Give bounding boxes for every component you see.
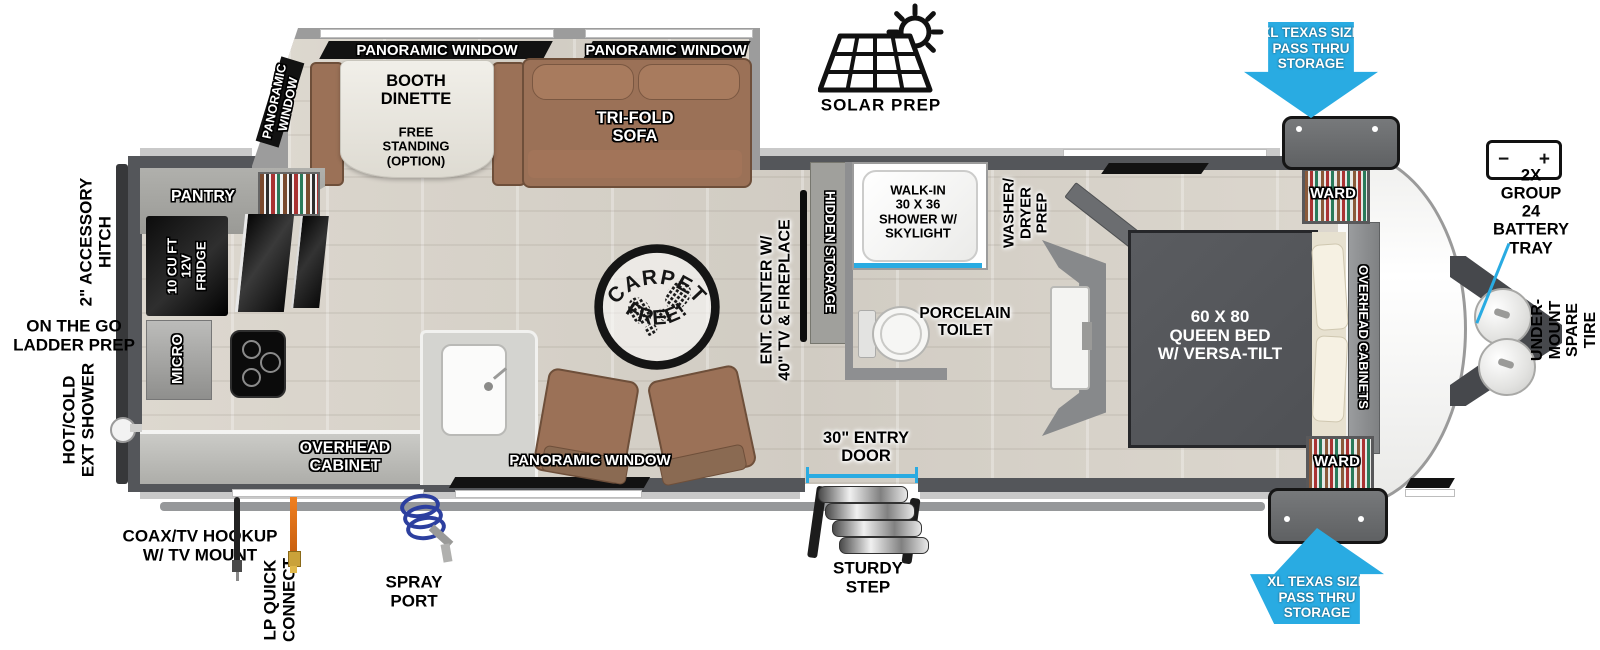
kitchen-window-strip (232, 489, 424, 497)
overhead-cabinet-label: OVERHEAD CABINET (300, 439, 391, 474)
wardrobe-label: WARD (1314, 454, 1360, 471)
tri-fold-sofa-label: TRI-FOLD SOFA (597, 109, 674, 145)
door-screw (1358, 516, 1364, 522)
door-screw (1284, 516, 1290, 522)
ext-shower-label: HOT/COLD EXT SHOWER (60, 363, 97, 477)
rv-floorplan: PANORAMIC WINDOW PANORAMIC WINDOW PANORA… (0, 0, 1600, 650)
coax-cable (234, 497, 240, 563)
bedroom-window-glass-bottom (1405, 478, 1455, 488)
sofa-seat (528, 150, 742, 178)
sofa-cushion (638, 64, 740, 100)
slide-window-strip (320, 29, 554, 38)
entry-door-measure-line (806, 474, 918, 478)
measure-tick (915, 467, 918, 483)
roof-band-top-left (140, 148, 252, 156)
pass-thru-label: XL TEXAS SIZE PASS THRU STORAGE (1250, 574, 1384, 621)
spray-nozzle-handle (441, 543, 453, 562)
wardrobe-label: WARD (1310, 186, 1356, 203)
solar-prep-label: SOLAR PREP (821, 97, 942, 116)
ladder-prep-label: ON THE GO LADDER PREP (13, 317, 135, 354)
burner (260, 352, 281, 373)
sturdy-step-label: STURDY STEP (833, 559, 903, 596)
hidden-storage-label: HIDDEN STORAGE (822, 191, 837, 313)
chassis-rail (160, 502, 1265, 511)
toilet-seat (880, 313, 922, 355)
counter-appliance-panel (235, 214, 294, 312)
shower-label: WALK-IN 30 X 36 SHOWER W/ SKYLIGHT (879, 183, 957, 240)
sofa-cushion (532, 64, 634, 100)
panoramic-window-label: PANORAMIC WINDOW (585, 43, 746, 60)
step-tread (818, 486, 908, 503)
dinette-bench (310, 62, 344, 186)
accessory-hitch-label: 2" ACCESSORY HITCH (77, 178, 114, 307)
pillow (1311, 243, 1349, 331)
booth-dinette-label: BOOTH DINETTE (381, 72, 452, 108)
bath-wall (845, 368, 947, 380)
pass-thru-arrow-down: XL TEXAS SIZE PASS THRU STORAGE (1244, 22, 1378, 118)
step-tread (825, 503, 915, 520)
window-strip-bottom-right (1405, 489, 1455, 497)
microwave-label: MICRO (170, 334, 187, 384)
spare-tire-label: UNDER-MOUNT SPARE TIRE (1529, 299, 1599, 361)
tv-bar (800, 190, 807, 342)
panoramic-window-label-bottom: PANORAMIC WINDOW (509, 453, 670, 470)
pass-thru-door-top (1282, 116, 1400, 170)
pantry-label: PANTRY (171, 188, 235, 206)
door-screw (1372, 126, 1378, 132)
step-tread (839, 537, 929, 554)
faucet-icon (484, 382, 493, 391)
ent-center-label: ENT. CENTER W/ 40" TV & FIREPLACE (758, 219, 793, 380)
pillow (1312, 335, 1348, 423)
roof-band-bottom-right (920, 492, 1270, 499)
entry-door-label: 30" ENTRY DOOR (823, 429, 909, 465)
queen-bed-label: 60 X 80 QUEEN BED W/ VERSA-TILT (1158, 308, 1282, 364)
panoramic-window-label: PANORAMIC WINDOW (356, 43, 517, 60)
free-standing-option-label: FREE STANDING (OPTION) (383, 126, 450, 169)
lp-fitting (288, 551, 301, 567)
door-screw (1296, 126, 1302, 132)
measure-tick (806, 467, 809, 483)
burner (242, 368, 261, 387)
skylight-bar (854, 263, 982, 268)
fridge-label: 10 CU FT 12V FRIDGE (166, 238, 209, 294)
overhead-cabinets-label: OVERHEAD CABINETS (1356, 265, 1370, 409)
toilet-label: PORCELAIN TOILET (919, 305, 1010, 339)
burner (242, 340, 261, 359)
slide-window-strip (585, 29, 753, 38)
kitchen-sink (441, 344, 507, 436)
spray-port-label: SPRAY PORT (385, 573, 442, 610)
vanity-faucet (1082, 322, 1092, 350)
dinette-bench (492, 62, 526, 186)
battery-tray-label: 2X GROUP 24 BATTERY TRAY (1493, 167, 1569, 258)
coax-connector (232, 560, 242, 572)
wall-top-left (128, 156, 260, 170)
coax-tip (236, 572, 239, 581)
pantry-shelves-icon (258, 172, 320, 216)
lp-hose (290, 497, 297, 553)
coax-hookup-label: COAX/TV HOOKUP W/ TV MOUNT (123, 527, 278, 564)
step-tread (832, 520, 922, 537)
carpet-free-stamp: CARPET FREE! (590, 240, 724, 374)
washer-dryer-prep-label: WASHER/ DRYER PREP (1001, 178, 1051, 248)
pass-thru-label: XL TEXAS SIZE PASS THRU STORAGE (1244, 25, 1378, 72)
window-strip-bottom (455, 490, 642, 498)
lp-fitting-tip (290, 566, 297, 573)
solar-prep-icon (818, 2, 948, 98)
ext-shower-knob-stem (130, 424, 142, 432)
bedroom-window-glass (1101, 163, 1209, 174)
